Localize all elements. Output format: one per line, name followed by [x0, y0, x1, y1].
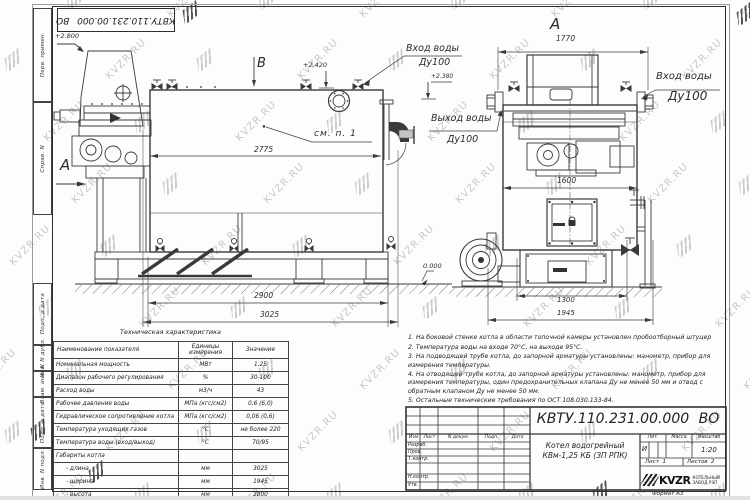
tech-table-cell: °С [179, 424, 233, 437]
signature-header-cell: Лист [421, 435, 438, 440]
tech-table-cell: 0,6 (6,0) [233, 398, 289, 411]
view-a-arrow-label: A [60, 156, 70, 174]
tech-table-cell: м3/ч [179, 385, 233, 398]
tech-table-row: Гидравлическое сопротивление котлаМПа (к… [54, 411, 289, 424]
elevation-zero-label: 0.000 [423, 262, 442, 270]
dimension-1600: 1600 [557, 176, 576, 185]
front-water-inlet-label: Вход воды [656, 71, 712, 82]
tech-table-cell: °С [179, 437, 233, 450]
signature-header-cell: Дата [505, 435, 530, 440]
tech-table-cell: 1,25 [233, 359, 289, 372]
title-block-designation: КВТУ.110.231.00.000 ВО [530, 411, 726, 427]
tech-table-cell: Диапазон рабочего регулирования [54, 372, 179, 385]
front-water-inlet-dn-label: Ду100 [668, 89, 707, 103]
dimension-2900: 2900 [254, 291, 273, 300]
kvzr-logo-icon [640, 474, 660, 486]
tech-table-header-units: Единицы измерения [179, 342, 233, 359]
tech-table-header-name: Наименование показателя [54, 342, 179, 359]
tech-table-cell: Температура воды (вход/выход) [54, 437, 179, 450]
tech-table-cell: % [179, 372, 233, 385]
product-name-line2: КВм-1,25 КБ (ЗП РПК) [530, 451, 640, 460]
tech-table-row: Температура воды (вход/выход)°С70/95 [54, 437, 289, 450]
company-name-line2: ЗАВОД РЭП [692, 480, 719, 485]
tech-table-cell: 0,06 (0,6) [233, 411, 289, 424]
tech-table-cell [233, 450, 289, 463]
elevation-inlet-label: +2.380 [431, 73, 453, 80]
tech-table-header-row: Наименование показателя Единицы измерени… [54, 342, 289, 359]
signature-row-label: Разраб. [408, 443, 427, 448]
tech-table-title: Техническая характеристика [53, 328, 288, 336]
tech-table-cell: МПа (кгс/см2) [179, 398, 233, 411]
tech-table-cell: 3025 [233, 463, 289, 476]
notes-list: 1. На боковой стенке котла в области топ… [408, 334, 726, 407]
dimension-2775: 2775 [254, 145, 273, 154]
side-view-drawing [54, 44, 503, 327]
tech-characteristics-table: Наименование показателя Единицы измерени… [53, 341, 289, 500]
company-logo: KVZR КОТЕЛЬНЫЙ ЗАВОД РЭП [643, 472, 723, 488]
scale-label: Масштаб [692, 435, 726, 440]
tech-table-body: Номинальная мощностьМВт1,25Диапазон рабо… [54, 359, 289, 500]
tech-table-row: Расход водым3/ч43 [54, 385, 289, 398]
rotated-designation-box: КВТУ.110.231.00.000 ВО [57, 8, 175, 32]
mass-label: Масса [666, 435, 692, 440]
product-name-line1: Котел водогрейный [530, 441, 640, 450]
tech-table-cell: Гидравлическое сопротивление котла [54, 411, 179, 424]
tech-table-row: Номинальная мощностьМВт1,25 [54, 359, 289, 372]
tech-table-cell: Номинальная мощность [54, 359, 179, 372]
signature-row-label: Н.контр. [408, 475, 429, 480]
tech-table-cell: МВт [179, 359, 233, 372]
tech-table-cell: не более 220 [233, 424, 289, 437]
water-outlet-label: Выход воды [431, 113, 492, 124]
sheet-cell: Лист 1 [645, 459, 666, 465]
tech-table-cell: 70/95 [233, 437, 289, 450]
elevation-manhole-label: +2.420 [303, 61, 327, 69]
tech-table-cell: - длина [54, 463, 179, 476]
signature-header-cell: Подп. [479, 435, 504, 440]
engineering-drawing-sheet: KVZR.RUKVZR.RUKVZR.RUKVZR.RUKVZR.RUKVZR.… [0, 0, 750, 500]
tech-table-cell: мм [179, 463, 233, 476]
tech-table-cell: Габариты котла [54, 450, 179, 463]
note-item: 2. Температура воды на входе 70°С, на вы… [408, 344, 726, 352]
tech-table-cell: 30-100 [233, 372, 289, 385]
sheets-value: 2 [711, 459, 715, 465]
dimension-1945: 1945 [557, 309, 575, 317]
tech-table-row: Габариты котла [54, 450, 289, 463]
note-item: 1. На боковой стенке котла в области топ… [408, 334, 726, 342]
note-item: 4. На отводящей трубе котла, до запорной… [408, 371, 726, 396]
side-water-inlet-label: Вход воды [406, 43, 459, 54]
front-view-title-label: A [550, 15, 560, 33]
tech-table-row: Диапазон рабочего регулирования%30-100 [54, 372, 289, 385]
company-name: КОТЕЛЬНЫЙ ЗАВОД РЭП [692, 475, 719, 486]
tech-table-cell: МПа (кгс/см2) [179, 411, 233, 424]
sheet-bottom-edge [0, 496, 750, 500]
lit-label: Лит. [640, 435, 666, 440]
dimension-1770: 1770 [556, 34, 575, 43]
signature-row-label: Утв. [408, 483, 418, 488]
sheets-label: Листов [687, 459, 708, 465]
tech-table-cell: Температура уходящих газов [54, 424, 179, 437]
dimension-3025: 3025 [260, 310, 279, 319]
tech-table-row: - ширинамм1945 [54, 476, 289, 489]
signature-header-cell: N докум. [439, 435, 478, 440]
dimension-1300: 1300 [557, 296, 575, 304]
tech-table-cell: Рабочее давление воды [54, 398, 179, 411]
tech-table-cell: - ширина [54, 476, 179, 489]
signature-row-label: Т.контр. [408, 457, 429, 462]
tech-table-cell [179, 450, 233, 463]
sheet-value: 1 [662, 459, 666, 465]
elevation-top-label: +2.800 [55, 32, 79, 40]
tech-table-row: - длинамм3025 [54, 463, 289, 476]
tech-table-row: Рабочее давление водыМПа (кгс/см2)0,6 (6… [54, 398, 289, 411]
signature-header-cell: Изм [407, 435, 420, 440]
view-b-marker-label: B [257, 56, 266, 71]
tech-table-header-value: Значение [233, 342, 289, 359]
tech-table-row: Температура уходящих газов°Сне более 220 [54, 424, 289, 437]
rotated-designation-text: КВТУ.110.231.00.000 ВО [56, 15, 175, 25]
tech-table-cell: Расход воды [54, 385, 179, 398]
note-item: 3. На подводящей трубе котла, до запорно… [408, 353, 726, 369]
see-note-label: см. п. 1 [314, 129, 357, 139]
water-outlet-dn-label: Ду100 [447, 134, 478, 145]
tech-table-cell: 1945 [233, 476, 289, 489]
company-logo-text: KVZR [659, 474, 690, 487]
scale-value: 1:20 [692, 446, 726, 454]
tech-table-cell: мм [179, 476, 233, 489]
lit-value: И [640, 445, 649, 453]
sheets-cell: Листов 2 [687, 459, 715, 465]
note-item: 5. Остальные технические требования по О… [408, 397, 726, 405]
sheet-label: Лист [645, 459, 659, 465]
signature-row-label: Пров. [408, 450, 422, 455]
tech-table-cell: 43 [233, 385, 289, 398]
side-water-inlet-dn-label: Ду100 [419, 57, 450, 68]
